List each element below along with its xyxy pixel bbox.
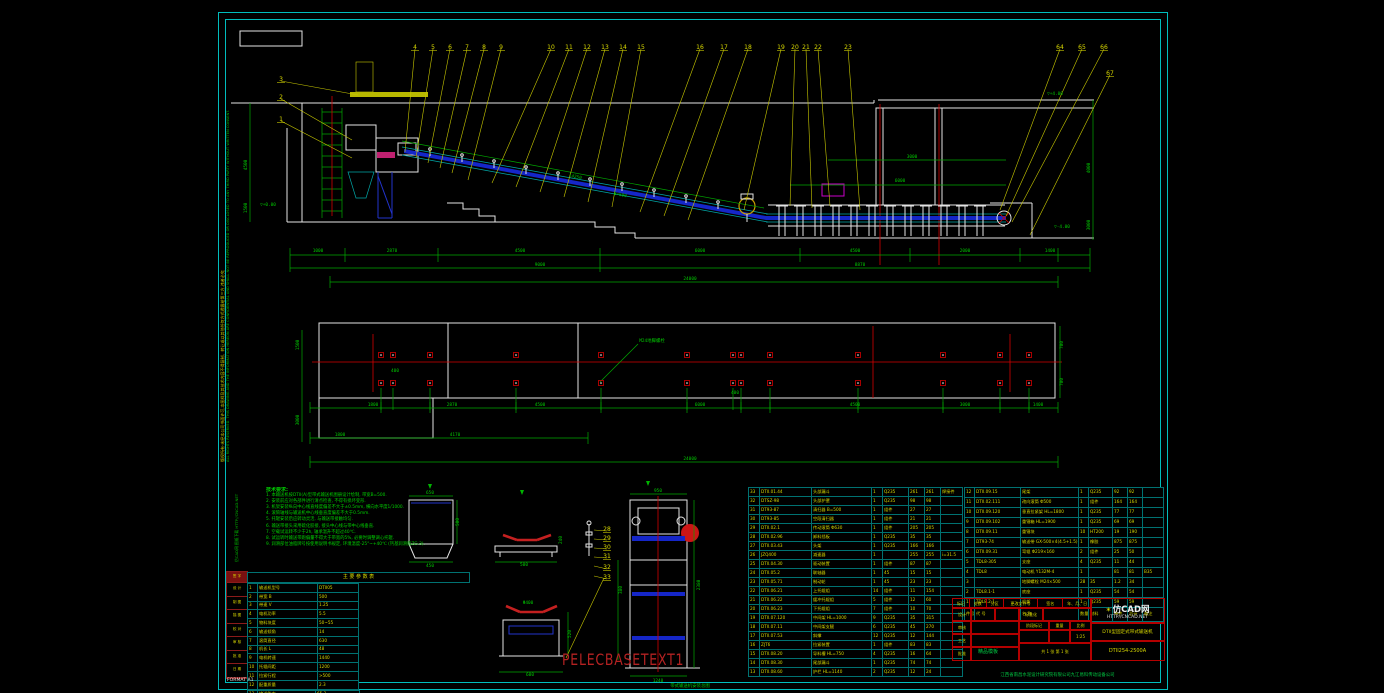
dimension-text: 3000 [960,402,971,408]
trough-idler-detail-1 [495,490,557,562]
bom-row: 23 DTII.05.71 制动轮 1 45 23 23 [749,578,963,587]
bom-row: 28 DTII.02.96 卸料挡板 1 Q235 35 35 [749,533,963,542]
param-row: 2 带宽 B 500 [248,592,359,601]
logo-text: 仿CAD网 [1113,605,1150,615]
dimension-text: 6000 [895,178,906,184]
signoff-row: 批 准 [227,651,247,665]
callout-number: 6 [448,44,452,51]
leader-line [806,49,812,208]
callout-number: 28 [603,526,611,533]
dimension-text: 1800 [368,402,379,408]
callout-number: 16 [696,44,704,51]
callout-number: 12 [583,44,591,51]
signoff-row: 描 图 [227,610,247,624]
bolt-center [740,382,742,384]
dimension-text: 1800 [335,432,346,438]
plan-centerlines [312,326,1062,398]
dimension-text: 700 [1059,341,1065,349]
idler-roller [589,178,592,181]
bolt-center [999,382,1001,384]
param-row: 11 拉紧行程 >500 [248,671,359,680]
callout-number: 9 [499,44,503,51]
callout-number: 5 [431,44,435,51]
bom-row: 9 DTII.09.102 重锤箱 HL=1900 1 Q235 69 69 [965,518,1164,528]
cad-drawing-sheet: 版权所有·未经本公司书面许可,本图样及其技术内容不得复制、转让或以其他任何方式透… [0,0,1384,693]
bolt-center [429,354,431,356]
bolt-center [769,354,771,356]
bom-table-left: 33 DTII.01.44 头部漏斗 1 Q235 261 261 焊接件 32… [748,487,963,677]
signoff-rows: 设 计制 图描 图校 对审 核批 准日 期 [227,583,247,678]
callout-number: 14 [619,44,627,51]
bolt-center [515,354,517,356]
sheet-count: 共 1 张 第 1 张 [1018,642,1092,661]
bom-row: 19 DTII.07.120 中间架 HL=1000 9 Q235 35 315 [749,614,963,623]
approve-label: 批准 [952,646,972,661]
horizontal-idler-stands [776,206,986,236]
bolt-center [515,382,517,384]
bolt-center [686,354,688,356]
logo-star-icon: ✶ [1105,606,1111,614]
bolt-center [732,382,734,384]
bolt-center [600,382,602,384]
bottom-note: 带式输送机安装总图 [600,683,780,689]
param-row: 1 输送机型号 DTII05 [248,584,359,593]
bom-row: 24 DTII.05.2 联轴器 1 45 15 15 [749,569,963,578]
dimension-text: M24地脚螺栓 [639,337,665,344]
signoff-row: 制 图 [227,597,247,611]
elevation-view: 1234567891011121314151617181920212223646… [228,26,1168,316]
bolt-center [740,354,742,356]
callout-number: 33 [603,574,611,581]
plan-dim-lines [302,326,1060,468]
chute-box [822,184,844,196]
callout-number: 17 [720,44,728,51]
bom-row: 26 JZQ400 减速器 1 255 255 i=31.5 [749,551,963,560]
dimension-text: 4000 [1086,162,1092,173]
drawing-name: DTII型固定式带式输送机 [1090,622,1165,642]
dimension-text: 240 [558,536,564,544]
note-line: 9. 润滑部位油脂牌号按使用说明书规定, 环境温度-25°~+40℃ (钙基润滑… [266,542,468,548]
leader-line [452,49,484,173]
bom-row: 10 DTII.09.120 垂直拉紧架 HL=1800 1 Q235 77 7… [965,508,1164,518]
leader-line [428,49,450,163]
idler-roller [621,183,624,186]
leader-line [818,49,830,206]
param-row: 4 电机功率 5.5 [248,610,359,619]
callout-number: 30 [603,544,611,551]
callout-number: 8 [482,44,486,51]
bom-row: 32 DTSZ-98 头部护罩 1 Q235 98 98 [749,497,963,506]
plan-dim-text: 1800287045006000450030001400180041702400… [295,337,1065,462]
signoff-strip: 签 字 设 计制 图描 图校 对审 核批 准日 期 [226,571,248,679]
logo-url: HTTP//CNCAD.NET [1107,615,1148,620]
bom-row: 31 DT93-87 清扫器 B=500 1 组件 27 27 [749,506,963,515]
bolt-center [392,382,394,384]
idler-roller [557,172,560,175]
dimension-text: 6000 [695,248,706,254]
dimension-text: 2870 [387,248,398,254]
parameter-table-title: 主 要 参 数 表 [247,572,470,583]
bom-row: 29 DTII.02.1 传动滚筒 Φ630 1 组件 205 205 [749,524,963,533]
callout-number: 15 [637,44,645,51]
technical-notes: 技术要求: 1. 本输送机按DTII(A)型带式输送机图册设计绘制, 带宽B=5… [266,487,468,548]
callout-number: 7 [465,44,469,51]
bom-row: 12 DTII.09.15 尾架 1 Q235 92 92 [965,488,1164,498]
dimension-text: 2000 [960,248,971,254]
leader-line [468,49,501,180]
dimension-text: 520 [567,630,573,638]
idler-roller [653,189,656,192]
leader-line [281,99,352,140]
param-row: 8 机长 L 48 [248,645,359,654]
leader-line [281,81,358,95]
dimension-text: 1400 [1033,402,1044,408]
idler-roller [717,201,720,204]
callout-number: 65 [1078,44,1086,51]
callout-number: 20 [791,44,799,51]
signoff-row: 审 核 [227,637,247,651]
leader-line [612,49,641,207]
bolt-center [942,382,944,384]
bom-row: 15 DTII.08.20 导料槽 HL=750 4 Q235 16 64 [749,650,963,659]
bom-row: 17 DTII.07.53 斜撑 12 Q235 12 144 [749,632,963,641]
callout-number: 31 [603,553,611,560]
dimension-text: 8870 [855,262,866,268]
dimension-text: ▽+0.00 [260,202,276,208]
bom-row: 6 DTII.09.31 弯辊 Φ219×160 2 组件 25 50 [965,548,1164,558]
callout-number: 1 [279,116,283,123]
dimension-text: 1500 [295,339,301,350]
signoff-row: 日 期 [227,664,247,678]
bom-row: 4 TDL8 电动机 Y132M-4 1 81 81 B35 [965,568,1164,578]
dimension-text: 24000 [683,276,697,282]
bolt-center [1028,382,1030,384]
notes-lines: 1. 本输送机按DTII(A)型带式输送机图册设计绘制, 带宽B=500.2. … [266,493,468,548]
bom-row: 16 ZJT6 拉紧装置 1 组件 83 83 [749,641,963,650]
dimension-text: 6000 [695,402,706,408]
bom-row: 13 DTII.08.60 护栏 HL=1140 2 Q235 12 24 [749,668,963,677]
bom-row: 3 地脚螺栓 M24×500 28 35 1.2 34 [965,578,1164,588]
bom-row: 2 TDL8.1-1 底座 1 Q235 54 54 [965,588,1164,598]
leader-line [405,49,415,152]
bom-row: 14 DTII.08.30 尾部漏斗 1 Q235 74 74 [749,659,963,668]
param-row: 12 配重质量 2.3 [248,680,359,689]
callout-number: 13 [601,44,609,51]
bom-row: 18 DTII.07.11 中间架支腿 6 Q235 45 270 [749,623,963,632]
elevation-dim-text: 1000287045006000450020001400900088702400… [243,91,1092,282]
bom-row: 30 DT93-85 空段清扫器 1 组件 21 21 [749,515,963,524]
dimension-text: 1000 [313,248,324,254]
bolt-center [392,354,394,356]
leader-line [440,49,467,168]
idler-roller [493,160,496,163]
dimension-text: 4500 [515,248,526,254]
dimension-text: 2380 [696,579,702,590]
leader-line [664,49,724,216]
dimension-text: 4500 [535,402,546,408]
bom-row: 21 DTII.06.22 缓冲托辊组 5 组件 12 60 [749,596,963,605]
dimension-text: 3000 [907,154,918,160]
leader-line [1000,49,1060,210]
trough-idler-detail-2 [499,606,568,672]
dimension-text: 3000 [1086,219,1092,230]
dimension-text: 3000 [295,414,301,425]
param-row: 5 物料块度 50~55 [248,619,359,628]
callout-number: 64 [1056,44,1064,51]
callout-number: 4 [413,44,417,51]
bom-row: 33 DTII.01.44 头部漏斗 1 Q235 261 261 焊接件 [749,488,963,497]
leader-line [1012,49,1104,222]
dimension-text: 4500 [850,402,861,408]
bom-row: 20 DTII.06.23 下托辊组 7 组件 10 70 [749,605,963,614]
leader-line [640,49,700,212]
signoff-row: 设 计 [227,583,247,597]
dimension-text: 500 [520,562,528,568]
bom-row: 27 DTII.03.43 头架 1 Q235 166 166 [749,542,963,551]
leader-line [516,49,569,187]
dimension-text: 4170 [450,432,461,438]
dimension-text: 400 [731,390,739,396]
drive-unit-view [618,481,700,676]
watermark-text: PELECBASETEXT1 [562,650,684,669]
bolt-center [769,382,771,384]
signoff-header: 签 字 [227,572,247,583]
idler-roller [525,166,528,169]
dimension-text: 9000 [535,262,546,268]
bom-row: 5 TDL8-305 支座 4 Q235 11 44 [965,558,1164,568]
bolt-center [600,354,602,356]
dimension-text: 2870 [447,402,458,408]
bolt-center [686,382,688,384]
callout-number: 29 [603,535,611,542]
dimension-text: Φ400 [523,600,534,606]
param-row: 6 输送倾角 14 [248,627,359,636]
bolt-center [380,354,382,356]
dimension-text: ▽+4.00 [1047,91,1063,97]
title-block: 标记处数分区更改文件号签名年、月、日 设计 标准化 审核 阶段标记 重量 比例 … [952,598,1163,672]
param-row: 3 带速 V 1.25 [248,601,359,610]
bom-row: 8 DTII.09.11 重锤块 10 HT200 19 190 [965,528,1164,538]
idler-roller [461,154,464,157]
bolt-center [429,382,431,384]
parameter-table: 主 要 参 数 表 1 输送机型号 DTII05 2 带宽 B 500 3 带速… [247,572,470,693]
stamp-text: 精品模板 [978,648,998,655]
leader-line [1030,75,1110,235]
bolt-center [1028,354,1030,356]
dimension-text: 400 [391,368,399,374]
bom-row: 7 DT93-74 输送带 GX-500×4(4.5+1.5) 1 橡胶 875… [965,538,1164,548]
callout-number: 21 [802,44,810,51]
logo-cell: ✶ 仿CAD网 HTTP//CNCAD.NET [1090,598,1165,624]
dimension-text: 700 [1059,378,1065,386]
idler-roller [685,195,688,198]
callout-number: 67 [1106,70,1114,77]
bolt-center [999,354,1001,356]
leader-line [1006,49,1082,216]
leader-line [281,121,352,158]
leader-line [744,49,781,210]
leader-line [790,49,795,206]
dimension-text: 24000 [683,456,697,462]
callout-number: 23 [844,44,852,51]
dimension-text: 450 [426,563,434,569]
dimension-text: 1500 [243,202,249,213]
bom-row: 11 DTII.02.111 改向滚筒 Φ500 1 组件 164 164 [965,498,1164,508]
anchor-bolts [379,353,1032,411]
dimension-text: 4500 [850,248,861,254]
centerlines [332,96,939,265]
format-label: FORMAT A1 [227,678,254,683]
bolt-center [857,382,859,384]
callout-number: 18 [744,44,752,51]
leader-line [848,49,860,210]
dimension-text: 4500 [243,159,249,170]
signoff-row: 校 对 [227,624,247,638]
dimension-text: 1400 [1045,248,1056,254]
plan-view: 1800287045006000450030001400180041702400… [290,315,1080,475]
bolt-center [857,354,859,356]
callout-number: 32 [603,564,611,571]
param-row: 7 滚筒直径 630 [248,636,359,645]
parameter-table-right: 13 输送能力 65.3 14 电机型号 Y132M-4 15 减速器 ZQ35… [247,690,360,693]
param-row: 10 托辊间距 1200 [248,663,359,672]
dimension-text: 950 [654,488,662,494]
leader-line [688,49,748,220]
drawing-number: DTII254-2500A [1090,640,1165,661]
bolt-center [942,354,944,356]
bolt-center [380,382,382,384]
callout-number: 11 [565,44,573,51]
hopper-funnel [348,62,428,218]
leader-line [588,49,623,202]
callout-number: 66 [1100,44,1108,51]
bom-row: 22 DTII.06.21 上托辊组 14 组件 11 154 [749,587,963,596]
param-row: 9 电机转速 1440 [248,654,359,663]
dimension-text: 380 [618,586,624,594]
callout-number: 3 [279,76,283,83]
dimension-text: 600 [526,672,534,678]
parameter-table-left: 1 输送机型号 DTII05 2 带宽 B 500 3 带速 V 1.25 4 … [247,583,359,690]
bolt-center [732,354,734,356]
site-vertical-text: 仿CAD网 图纸下载 HTTP//CNCAD.NET [234,462,240,562]
callout-number: 2 [279,94,283,101]
callout-number: 19 [777,44,785,51]
detail-callouts: 282930313233 [594,526,611,581]
company-name: 江西省南昌水泥设计研究院有限公司九江易科传动设备公司 [952,672,1163,678]
bom-row: 25 DTII.04.30 驱动装置 1 组件 87 87 [749,560,963,569]
callout-number: 10 [547,44,555,51]
dimension-text: ▽-4.00 [1054,224,1070,230]
callout-number: 22 [814,44,822,51]
